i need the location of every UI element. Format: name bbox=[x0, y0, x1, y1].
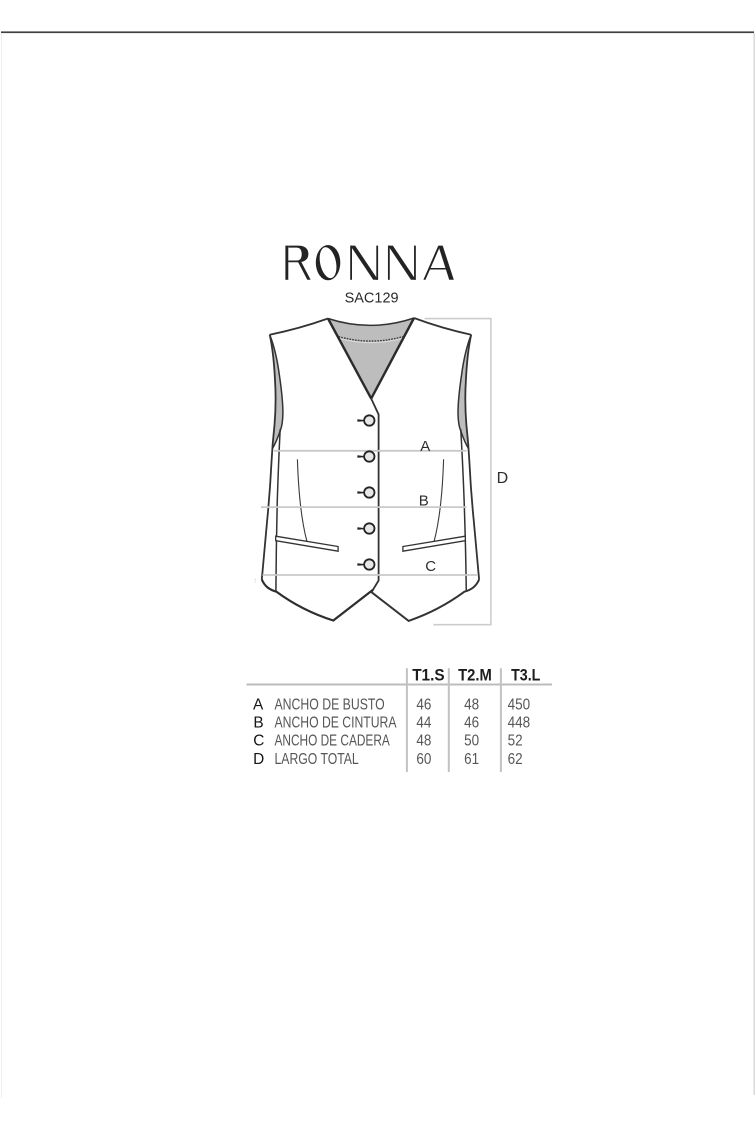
svg-text:48: 48 bbox=[416, 733, 431, 750]
svg-text:SAC129: SAC129 bbox=[345, 289, 399, 306]
svg-text:T1.S: T1.S bbox=[412, 667, 444, 685]
svg-text:ANCHO DE BUSTO: ANCHO DE BUSTO bbox=[275, 696, 385, 713]
svg-text:48: 48 bbox=[464, 696, 479, 713]
svg-text:46: 46 bbox=[464, 715, 479, 732]
svg-text:ANCHO DE CINTURA: ANCHO DE CINTURA bbox=[275, 715, 398, 732]
svg-text:62: 62 bbox=[508, 751, 523, 768]
svg-text:D: D bbox=[497, 470, 509, 487]
svg-text:448: 448 bbox=[508, 715, 531, 732]
svg-text:C: C bbox=[253, 733, 264, 750]
svg-text:B: B bbox=[253, 715, 263, 732]
svg-text:50: 50 bbox=[464, 733, 479, 750]
svg-text:C: C bbox=[425, 558, 436, 575]
svg-text:ANCHO DE CADERA: ANCHO DE CADERA bbox=[275, 733, 391, 750]
svg-text:52: 52 bbox=[508, 733, 523, 750]
svg-text:B: B bbox=[419, 492, 429, 509]
svg-text:46: 46 bbox=[416, 696, 431, 713]
svg-text:D: D bbox=[253, 751, 264, 768]
svg-text:450: 450 bbox=[508, 696, 531, 713]
svg-text:A: A bbox=[420, 438, 430, 455]
svg-text:A: A bbox=[253, 696, 264, 713]
svg-text:T3.L: T3.L bbox=[511, 667, 540, 685]
svg-text:LARGO TOTAL: LARGO TOTAL bbox=[275, 751, 360, 768]
svg-text:44: 44 bbox=[416, 715, 431, 732]
svg-text:61: 61 bbox=[464, 751, 479, 768]
svg-text:T2.M: T2.M bbox=[458, 667, 492, 685]
svg-text:60: 60 bbox=[416, 751, 431, 768]
